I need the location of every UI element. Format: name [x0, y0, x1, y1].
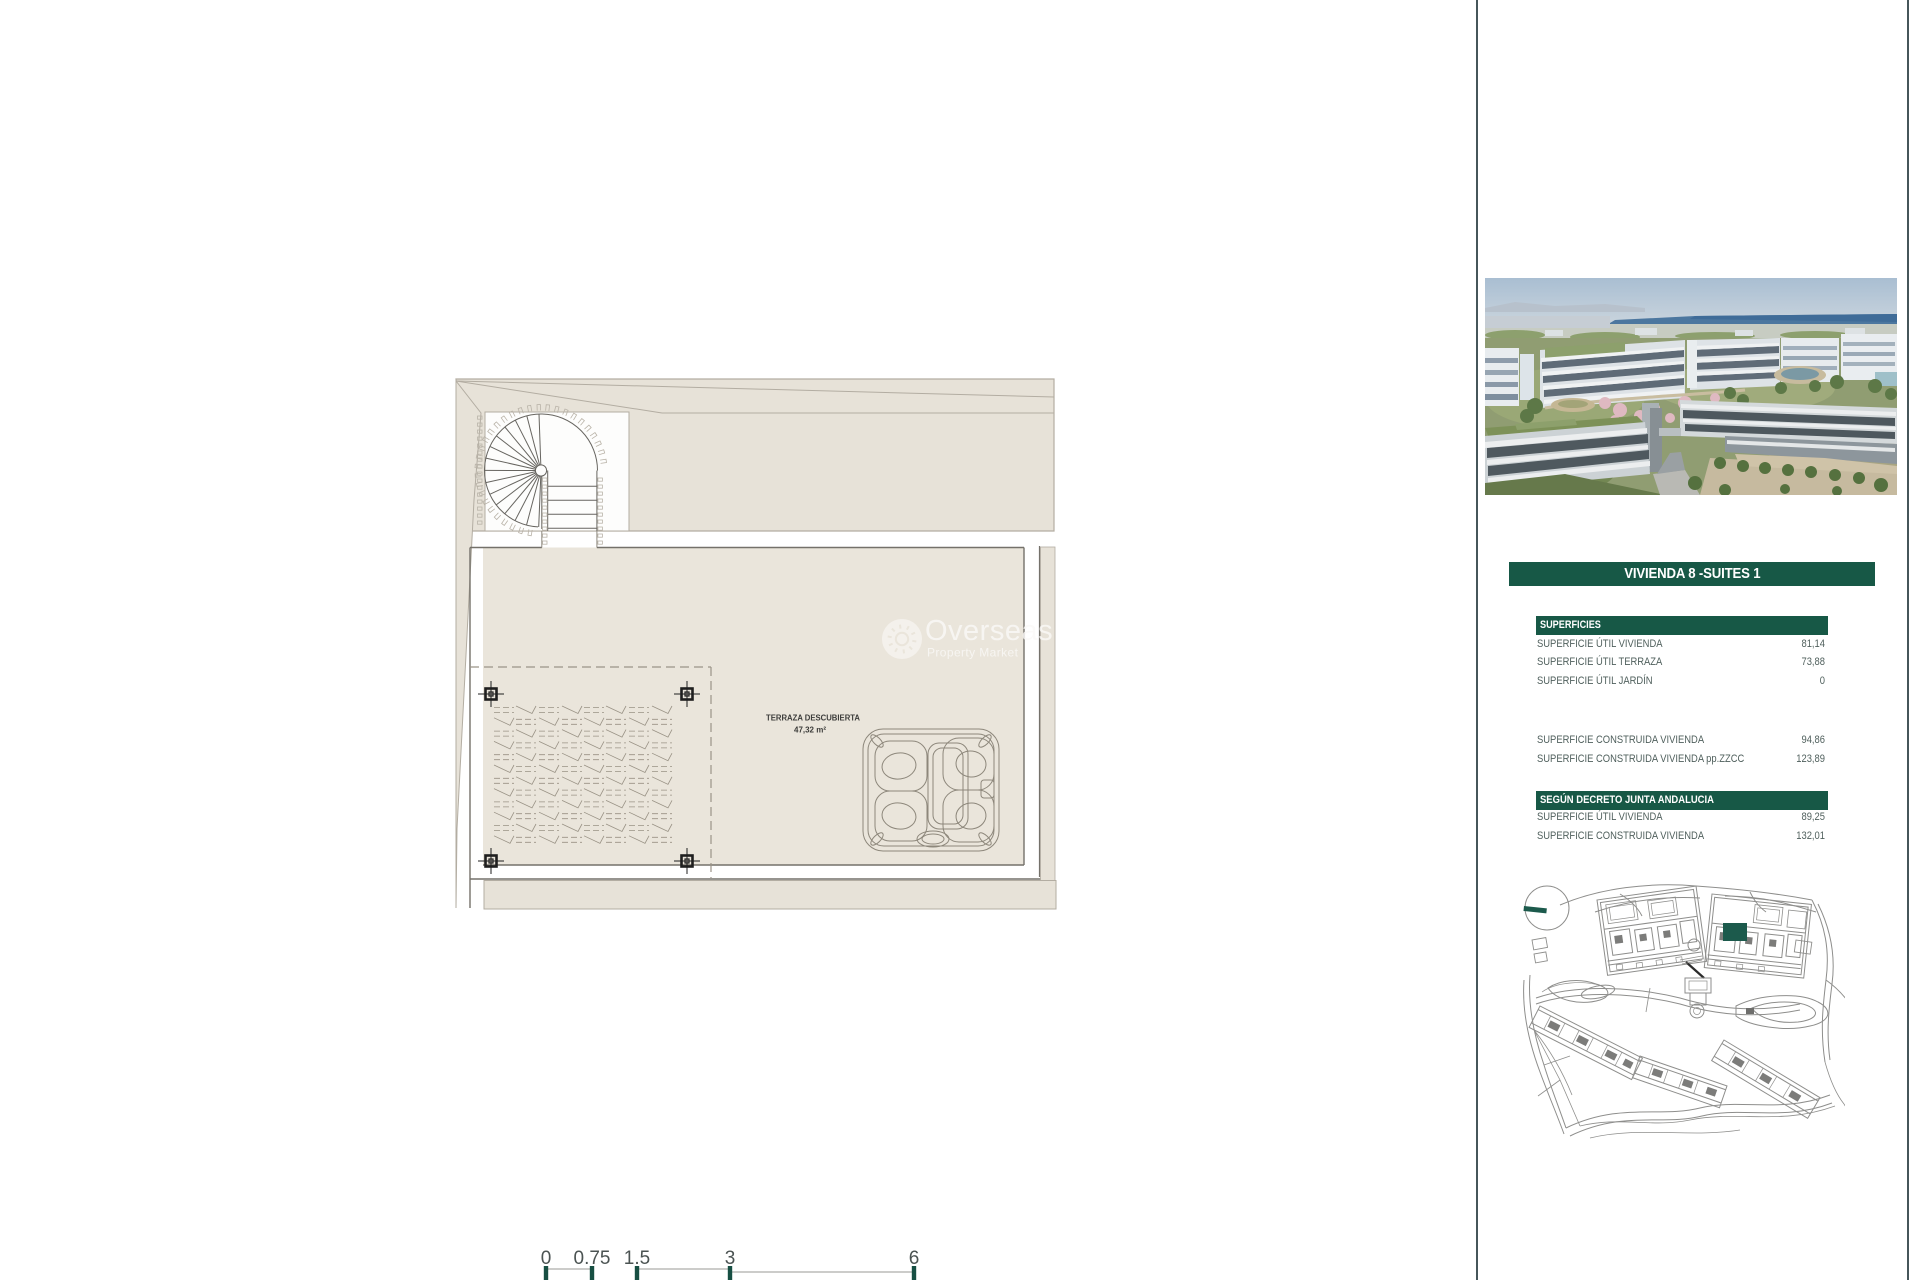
svg-text:TERRAZA DESCUBIERTA: TERRAZA DESCUBIERTA — [766, 713, 860, 723]
svg-text:0: 0 — [541, 1248, 552, 1269]
svg-text:6: 6 — [909, 1248, 920, 1269]
svg-text:Property Market: Property Market — [927, 646, 1019, 660]
svg-text:47,32 m²: 47,32 m² — [794, 725, 826, 735]
svg-text:Overseas: Overseas — [925, 615, 1053, 647]
svg-text:3: 3 — [725, 1248, 736, 1269]
svg-text:0.75: 0.75 — [574, 1248, 611, 1269]
svg-text:1.5: 1.5 — [624, 1248, 650, 1269]
